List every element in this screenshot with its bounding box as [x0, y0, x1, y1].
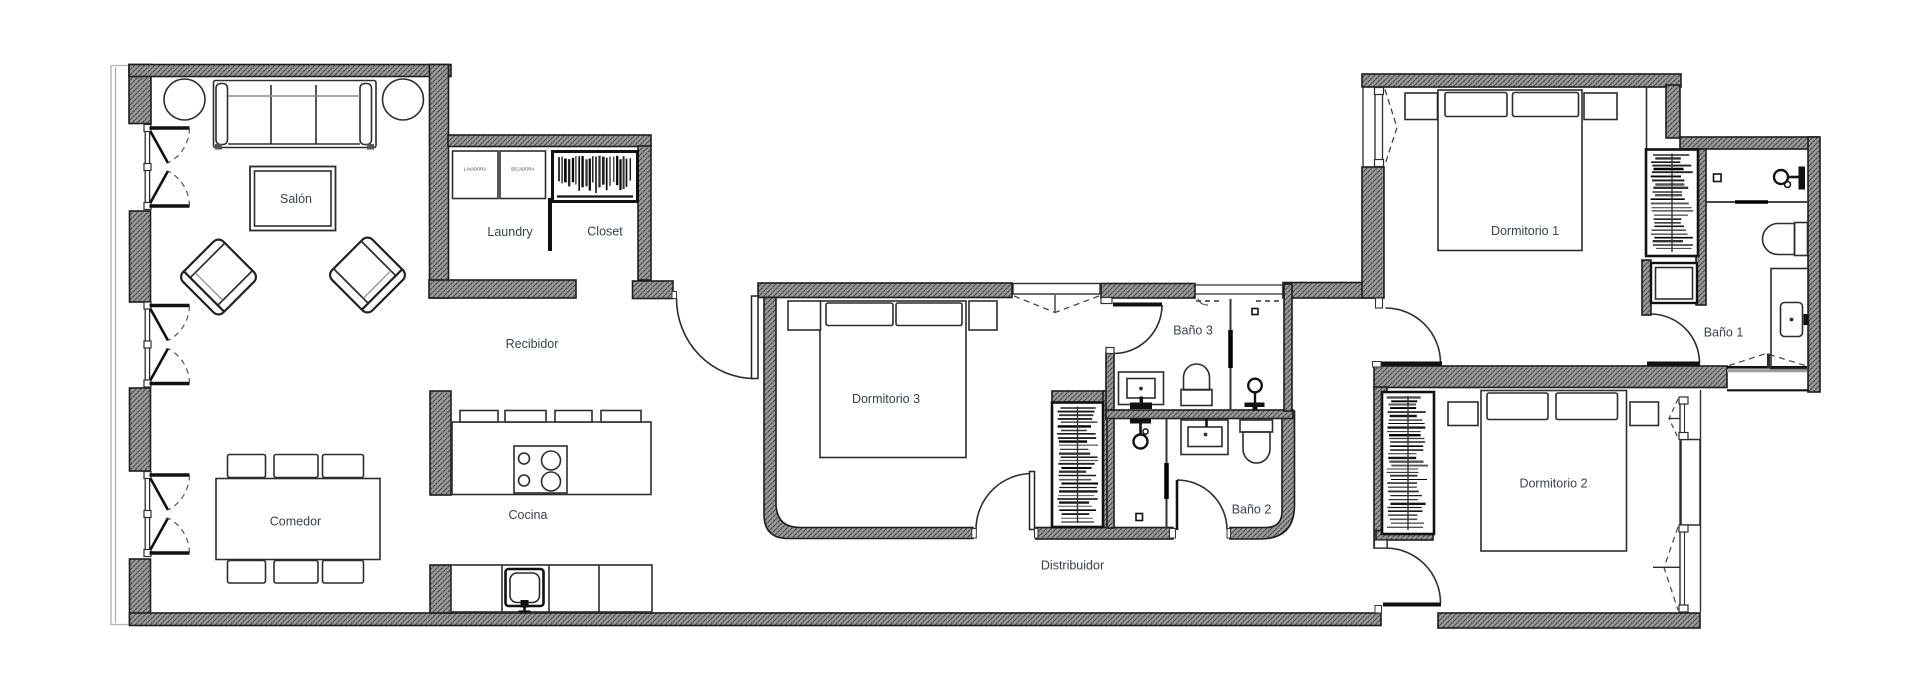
svg-text:Cocina: Cocina: [509, 508, 548, 522]
svg-text:Laundry: Laundry: [487, 225, 533, 239]
svg-text:Salón: Salón: [280, 192, 312, 206]
svg-text:Comedor: Comedor: [270, 515, 321, 529]
svg-text:LAVADORA: LAVADORA: [464, 167, 486, 172]
svg-text:Recibidor: Recibidor: [506, 337, 559, 351]
svg-text:Baño 1: Baño 1: [1704, 326, 1744, 340]
svg-text:Baño 2: Baño 2: [1232, 503, 1272, 517]
svg-text:Dormitorio 3: Dormitorio 3: [852, 392, 920, 406]
svg-text:Baño 3: Baño 3: [1173, 324, 1213, 338]
svg-text:Dormitorio 1: Dormitorio 1: [1491, 224, 1559, 238]
svg-text:SECADORA: SECADORA: [511, 167, 535, 172]
svg-text:Distribuidor: Distribuidor: [1041, 559, 1104, 573]
svg-text:Closet: Closet: [587, 225, 623, 239]
svg-text:Dormitorio 2: Dormitorio 2: [1519, 477, 1587, 491]
